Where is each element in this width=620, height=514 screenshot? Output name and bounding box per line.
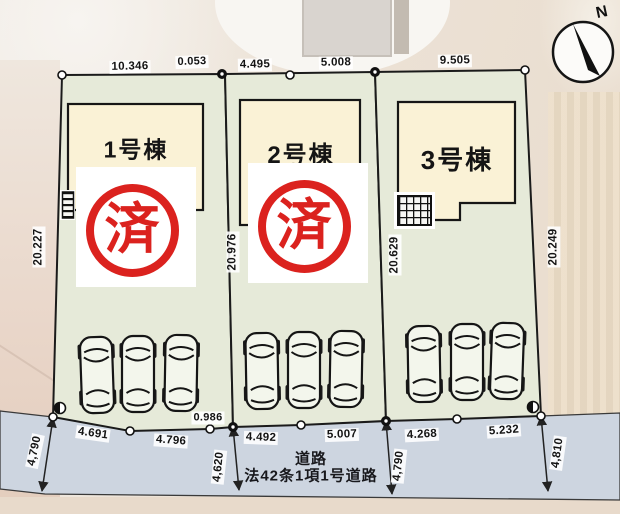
dim-top-2: 0.053 <box>175 55 208 69</box>
car-icon <box>77 336 117 413</box>
road-label-line2: 法42条1項1号道路 <box>244 469 377 484</box>
building-1-entrance-mark <box>63 192 74 218</box>
dim-bottom-3: 0.986 <box>191 412 224 425</box>
car-icon <box>286 332 323 408</box>
dim-depth-lot3: 20.629 <box>389 235 402 276</box>
car-icon <box>162 335 200 412</box>
sold-stamp-text: 済 <box>104 202 159 259</box>
site-plan-image: 1号棟 2号棟 3号棟 済 済 10.346 0.053 4.495 5.008… <box>0 0 620 514</box>
dim-top-3: 4.495 <box>238 58 273 72</box>
sold-stamp-text: 済 <box>276 198 331 255</box>
dim-depth-left: 20.227 <box>33 227 46 268</box>
car-icon <box>327 331 365 408</box>
sold-stamp-lot2: 済 <box>248 163 368 283</box>
sold-stamp-circle: 済 <box>258 180 351 273</box>
dim-top-4: 5.008 <box>319 56 354 70</box>
car-icon <box>405 326 443 403</box>
car-icon <box>120 336 157 412</box>
sold-stamp-lot1: 済 <box>76 167 196 287</box>
dim-bottom-6: 4.268 <box>405 428 440 443</box>
dim-depth-lot2: 20.976 <box>227 232 240 273</box>
building-3-entrance-mark <box>398 196 431 225</box>
dim-depth-right: 20.249 <box>548 227 561 268</box>
road-label-line1: 道路 <box>295 452 327 467</box>
dim-bottom-7: 5.232 <box>486 423 521 438</box>
dim-bottom-5: 5.007 <box>325 428 360 442</box>
dim-top-1: 10.346 <box>109 60 150 74</box>
building-1-label: 1号棟 <box>104 139 169 162</box>
sold-stamp-circle: 済 <box>86 184 179 277</box>
car-icon <box>487 322 527 399</box>
car-icon <box>243 333 281 410</box>
car-icon <box>449 324 486 400</box>
dim-top-5: 9.505 <box>438 54 473 68</box>
building-3-label: 3号棟 <box>421 147 493 173</box>
dim-bottom-2: 4.796 <box>153 433 188 448</box>
compass-icon <box>553 22 613 82</box>
dim-bottom-4: 4.492 <box>244 431 279 445</box>
